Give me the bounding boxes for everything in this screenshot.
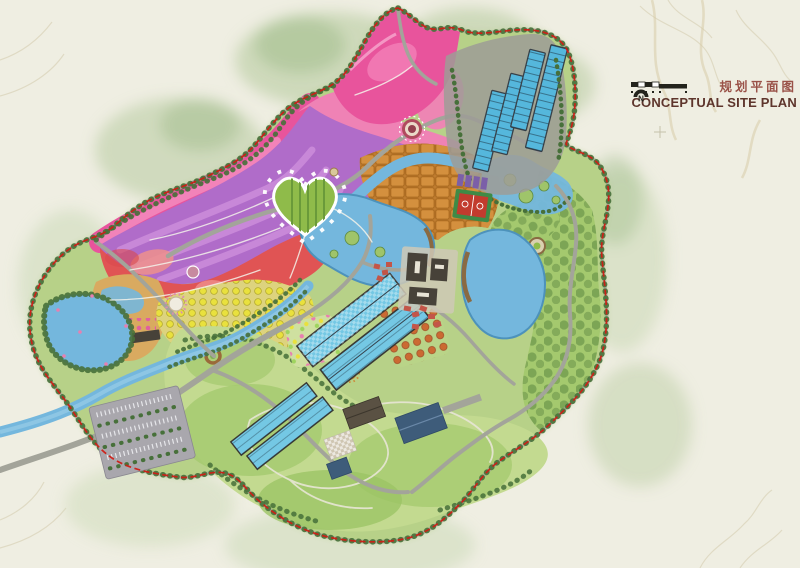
conceptual-site-plan-page: context-terrain context-terrain: [0, 0, 800, 568]
north-greenhouses: north-greenhouses: [444, 34, 568, 195]
scale-bar: [631, 81, 689, 97]
west-pond: west-pond: [44, 294, 132, 370]
plan-title-en: CONCEPTUAL SITE PLAN: [631, 96, 797, 110]
title-block: 规划平面图 CONCEPTUAL SITE PLAN N: [631, 81, 797, 115]
